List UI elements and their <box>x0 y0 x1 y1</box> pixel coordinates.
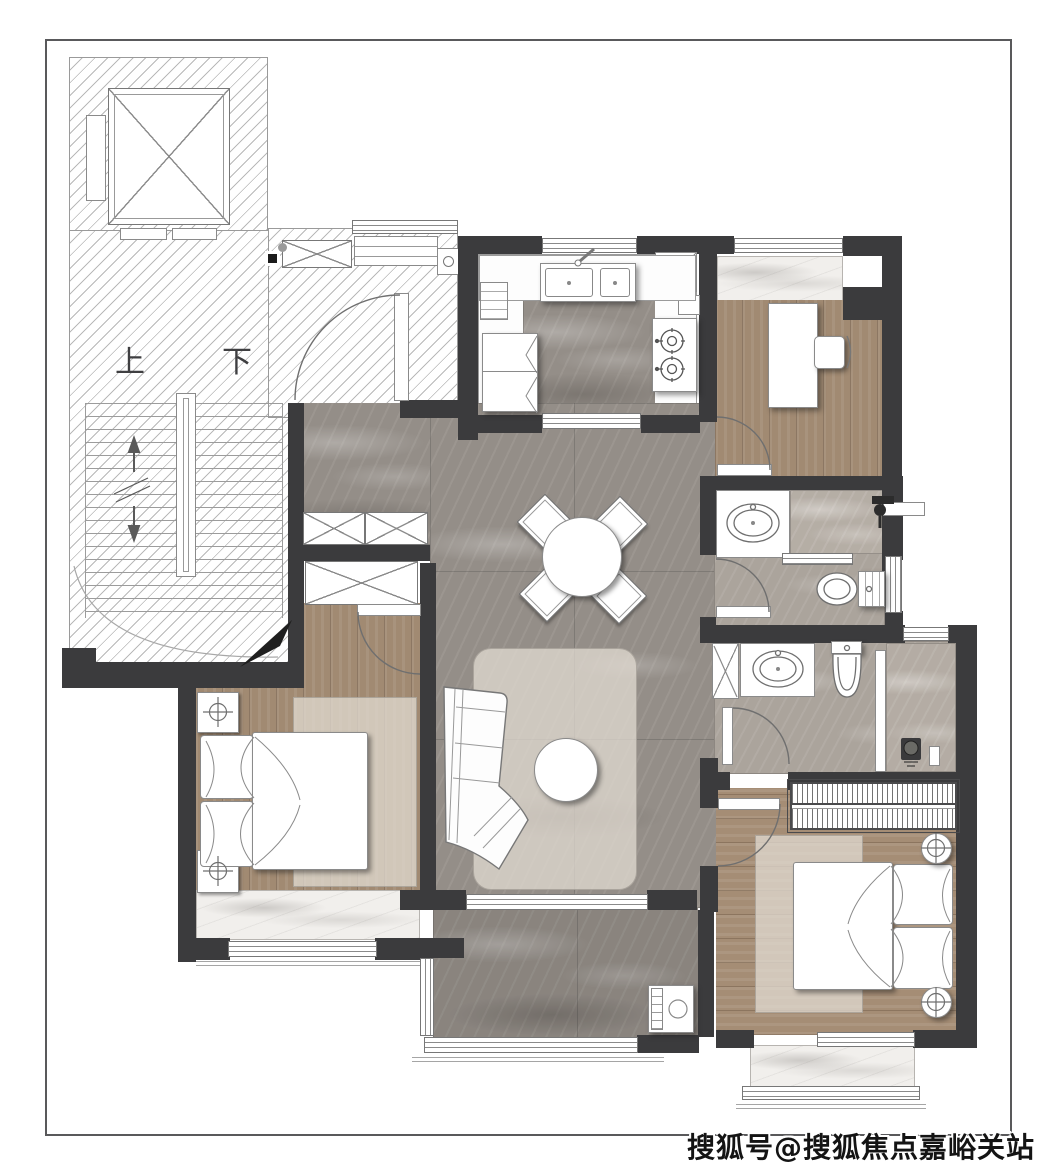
wall <box>700 866 718 912</box>
washer-panel <box>651 988 663 1030</box>
wall <box>699 236 717 422</box>
desk-icon <box>768 303 818 408</box>
wall <box>303 545 430 561</box>
bathroom1-window <box>885 556 902 613</box>
bathroom1-door-leaf <box>716 606 771 618</box>
coffee-table-icon <box>534 738 598 802</box>
refrigerator-icon <box>482 333 538 412</box>
toilet-tank <box>858 571 885 607</box>
wall <box>700 476 900 490</box>
bathroom2-shower-window <box>903 627 949 641</box>
nightstand <box>197 692 239 733</box>
stair-handrail-line <box>183 398 189 572</box>
master-door-leaf <box>357 604 421 616</box>
wall <box>843 236 902 256</box>
bathroom2-shower-floor <box>886 643 956 772</box>
wall <box>700 490 716 555</box>
bathroom2-vanity-counter <box>740 643 815 697</box>
hall-cabinet <box>365 512 428 545</box>
watermark: 搜狐号@搜狐焦点嘉峪关站 <box>687 1126 1035 1166</box>
master-bay-marble <box>196 890 420 940</box>
wall <box>885 476 903 560</box>
corridor-duct-shaft <box>282 240 352 268</box>
wall <box>956 627 977 1037</box>
kitchen-sliding-door <box>542 413 641 429</box>
wall <box>716 1030 754 1048</box>
refrigerator-divider <box>483 371 537 372</box>
bathroom2-glass-screen <box>712 643 739 699</box>
living-balcony-slider <box>466 894 648 910</box>
wall <box>718 772 730 790</box>
wall <box>420 563 436 612</box>
pillow <box>893 927 953 989</box>
bedroom1-window <box>734 238 843 253</box>
kitchen-floor-marble <box>523 300 655 415</box>
towel-bar-icon <box>883 502 925 516</box>
wall <box>458 254 478 440</box>
master-window <box>228 941 377 957</box>
wall <box>420 610 436 892</box>
pillow <box>893 864 953 925</box>
hall-cabinet <box>303 512 365 545</box>
wall <box>885 611 903 627</box>
bedroom1-bay-marble <box>717 256 843 302</box>
floor-plan-image: 上 下 搜狐号@搜狐焦点嘉峪关站 <box>0 0 1037 1172</box>
bedroom2-door-leaf <box>718 798 780 810</box>
wall <box>913 1030 977 1048</box>
wall <box>700 625 905 643</box>
balcony-side-window <box>420 958 434 1036</box>
wall <box>458 415 542 433</box>
shower-slider-bathroom1 <box>782 553 853 565</box>
wall <box>647 890 697 910</box>
master-wardrobe <box>305 561 418 605</box>
nightstand <box>921 833 952 864</box>
double-bed-icon <box>252 732 368 870</box>
bathroom2-glass-partition <box>875 650 886 772</box>
gas-meter-dial <box>443 256 454 267</box>
wall <box>178 686 196 962</box>
bedroom1-door-leaf <box>717 464 772 476</box>
sink-basin-left <box>545 268 593 297</box>
corridor-window <box>352 220 458 234</box>
bathroom1-shower-floor <box>790 490 885 554</box>
gas-stove-icon <box>652 318 697 392</box>
elevator-door-slot-right <box>172 228 217 240</box>
wall <box>700 758 718 790</box>
bathroom2-door-leaf <box>722 707 733 765</box>
electric-meter-icon <box>265 251 280 266</box>
wall <box>400 400 460 418</box>
toilet-tank <box>831 641 862 654</box>
elevator-counterweight <box>86 115 106 201</box>
coffee-machine-icon <box>480 282 508 320</box>
bathroom1-vanity-counter <box>716 490 790 558</box>
kitchen-window <box>542 238 637 253</box>
stairs-down-label: 下 <box>222 348 252 378</box>
wall <box>375 938 421 960</box>
wall <box>178 938 230 960</box>
corridor-equipment-box <box>354 236 438 266</box>
wall <box>288 403 304 673</box>
wall <box>698 910 714 1037</box>
stairs-up-label: 上 <box>115 348 145 378</box>
elevator-door-slot-left <box>120 228 167 240</box>
bedroom2-balcony-slider <box>817 1032 915 1047</box>
pillow <box>200 735 254 799</box>
nightstand <box>921 987 952 1018</box>
wall <box>843 287 893 320</box>
wall <box>62 662 304 688</box>
pillow <box>200 801 254 867</box>
bedroom2-balcony-marble <box>750 1045 915 1088</box>
bedroom2-balcony-window <box>742 1086 920 1100</box>
master-window-sill <box>196 958 428 968</box>
dining-table-icon <box>542 517 622 597</box>
desk-chair-icon <box>814 336 845 369</box>
wall <box>418 938 464 958</box>
wall <box>641 415 700 433</box>
sink-basin-right <box>600 268 630 297</box>
balcony-window-sill <box>412 1054 664 1062</box>
balcony-window <box>424 1037 638 1053</box>
bedroom2-balcony-sill <box>736 1101 926 1109</box>
wall <box>637 1035 699 1053</box>
entry-door-leaf <box>394 293 409 401</box>
meter-dot-icon <box>278 243 287 252</box>
double-bed-icon <box>793 862 893 990</box>
wardrobe-rail <box>792 803 955 809</box>
shower-kettle <box>929 746 940 766</box>
wall <box>700 790 718 808</box>
wall <box>458 236 542 254</box>
wall <box>400 890 466 910</box>
elevator-car-inner-line <box>114 94 224 219</box>
